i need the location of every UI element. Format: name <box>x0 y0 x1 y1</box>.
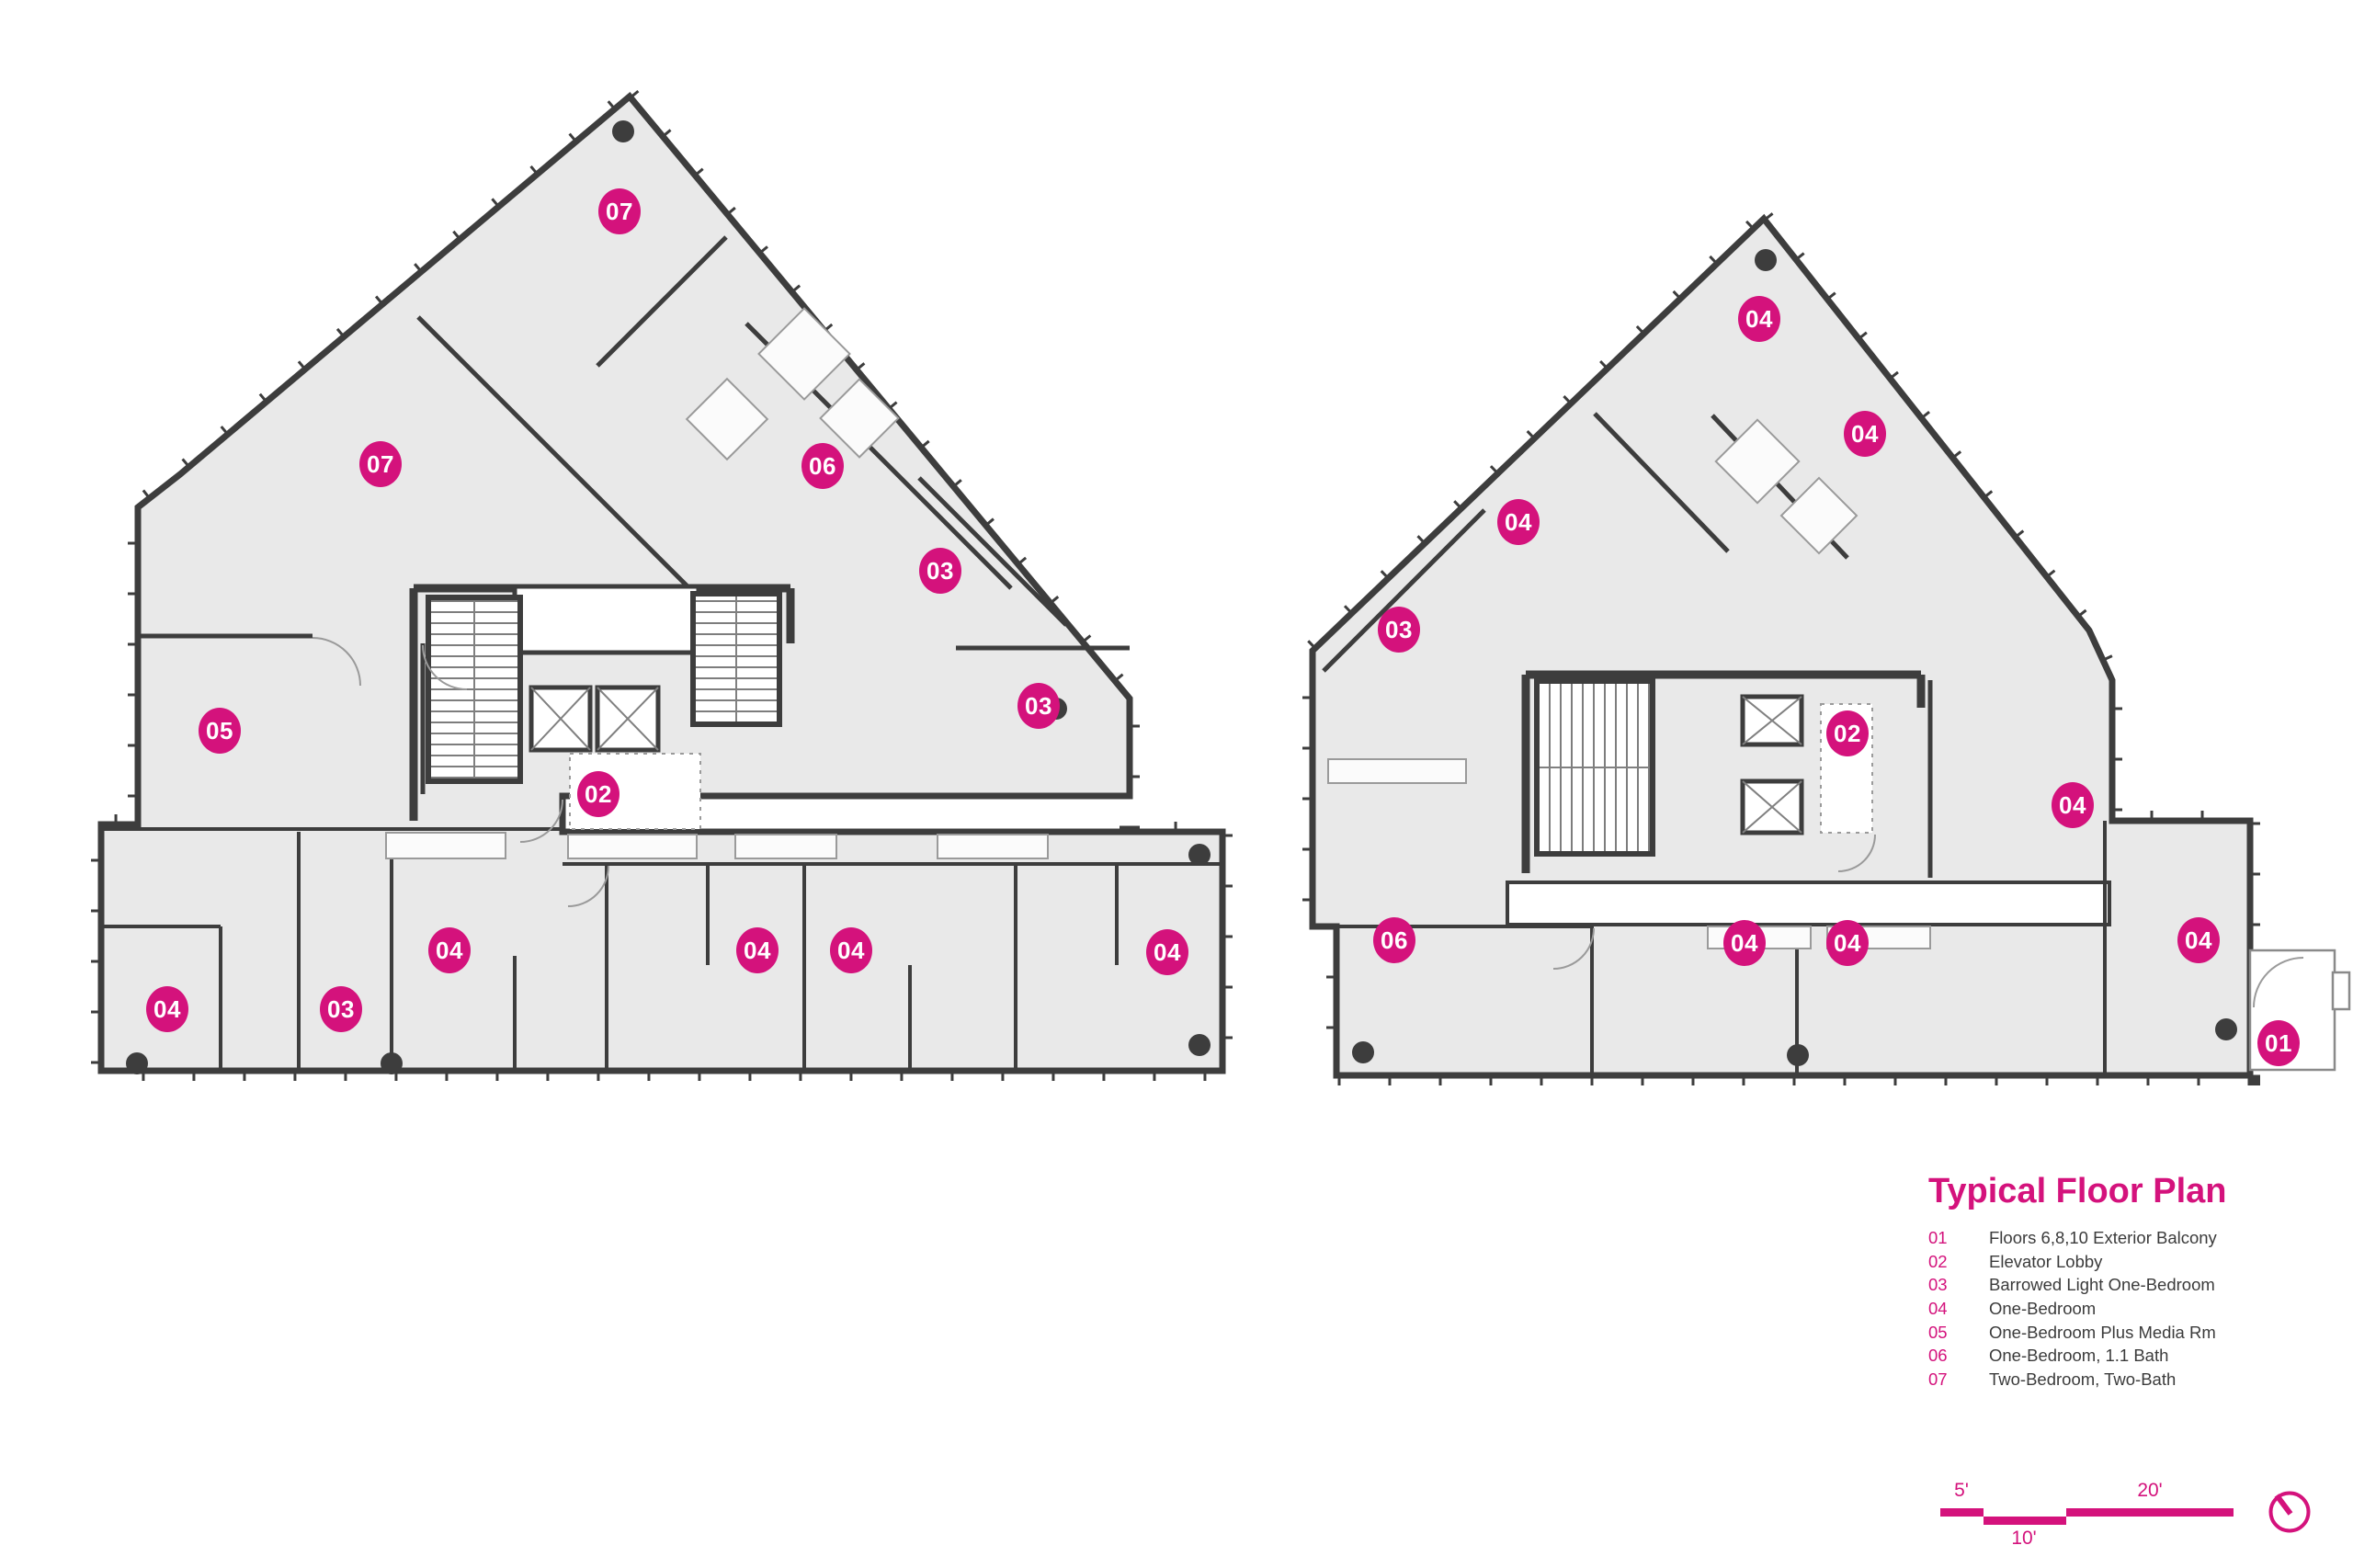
unit-badge-04: 04 <box>1146 929 1188 975</box>
legend-item-02: 02Elevator Lobby <box>1928 1250 2351 1274</box>
unit-badge-01: 01 <box>2257 1020 2300 1066</box>
unit-badge-06: 06 <box>801 443 844 489</box>
unit-badge-03: 03 <box>919 548 961 594</box>
legend-item-label: One-Bedroom Plus Media Rm <box>1989 1321 2216 1345</box>
unit-badge-04: 04 <box>736 927 779 973</box>
corridor <box>1507 882 2109 925</box>
unit-badge-04: 04 <box>1738 296 1780 342</box>
unit-badge-04: 04 <box>1723 920 1766 966</box>
scale-segment-5ft <box>1940 1508 1984 1517</box>
unit-badge-04: 04 <box>2052 782 2094 828</box>
unit-badge-04: 04 <box>428 927 471 973</box>
unit-badge-03: 03 <box>1378 607 1420 653</box>
unit-badge-05: 05 <box>199 708 241 754</box>
legend-item-01: 01Floors 6,8,10 Exterior Balcony <box>1928 1226 2351 1250</box>
unit-badge-06: 06 <box>1373 917 1415 963</box>
unit-badge-04: 04 <box>830 927 872 973</box>
legend-item-label: Barrowed Light One-Bedroom <box>1989 1273 2215 1297</box>
legend-item-number: 02 <box>1928 1250 1989 1274</box>
legend-item-label: Floors 6,8,10 Exterior Balcony <box>1989 1226 2217 1250</box>
legend-item-number: 03 <box>1928 1273 1989 1297</box>
legend-item-06: 06One-Bedroom, 1.1 Bath <box>1928 1344 2351 1368</box>
legend-item-number: 04 <box>1928 1297 1989 1321</box>
unit-badge-04: 04 <box>2177 917 2220 963</box>
north-arrow-icon <box>2267 1489 2313 1535</box>
unit-badge-04: 04 <box>1844 411 1886 457</box>
left-floor-plan <box>101 97 1222 1074</box>
scale-label-10ft: 10' <box>2011 1528 2036 1550</box>
unit-badge-03: 03 <box>1017 683 1060 729</box>
scale-label-5ft: 5' <box>1954 1480 1969 1502</box>
unit-badge-04: 04 <box>146 986 188 1032</box>
legend: Typical Floor Plan 01Floors 6,8,10 Exter… <box>1928 1174 2351 1392</box>
unit-badge-02: 02 <box>1826 710 1869 756</box>
legend-item-03: 03Barrowed Light One-Bedroom <box>1928 1273 2351 1297</box>
unit-badge-02: 02 <box>577 771 620 817</box>
page-title: Typical Floor Plan <box>1928 1174 2351 1210</box>
legend-item-07: 07Two-Bedroom, Two-Bath <box>1928 1368 2351 1392</box>
legend-item-number: 07 <box>1928 1368 1989 1392</box>
scale-label-20ft: 20' <box>2137 1480 2162 1502</box>
scale-segment-20ft <box>2066 1508 2234 1517</box>
scale-segment-10ft <box>1984 1517 2066 1525</box>
legend-item-label: Elevator Lobby <box>1989 1250 2102 1274</box>
legend-item-04: 04One-Bedroom <box>1928 1297 2351 1321</box>
unit-badge-07: 07 <box>598 188 641 234</box>
legend-item-label: One-Bedroom <box>1989 1297 2096 1321</box>
unit-badge-04: 04 <box>1826 920 1869 966</box>
unit-badge-04: 04 <box>1497 499 1540 545</box>
legend-item-05: 05One-Bedroom Plus Media Rm <box>1928 1321 2351 1345</box>
unit-badge-03: 03 <box>320 986 362 1032</box>
legend-item-number: 01 <box>1928 1226 1989 1250</box>
legend-rows: 01Floors 6,8,10 Exterior Balcony02Elevat… <box>1928 1226 2351 1392</box>
legend-item-number: 06 <box>1928 1344 1989 1368</box>
legend-item-label: Two-Bedroom, Two-Bath <box>1989 1368 2176 1392</box>
unit-badge-07: 07 <box>359 441 402 487</box>
legend-item-label: One-Bedroom, 1.1 Bath <box>1989 1344 2168 1368</box>
floor-plan-sheet: 0707060303050204040404040304040403020406… <box>0 0 2353 1568</box>
legend-item-number: 05 <box>1928 1321 1989 1345</box>
